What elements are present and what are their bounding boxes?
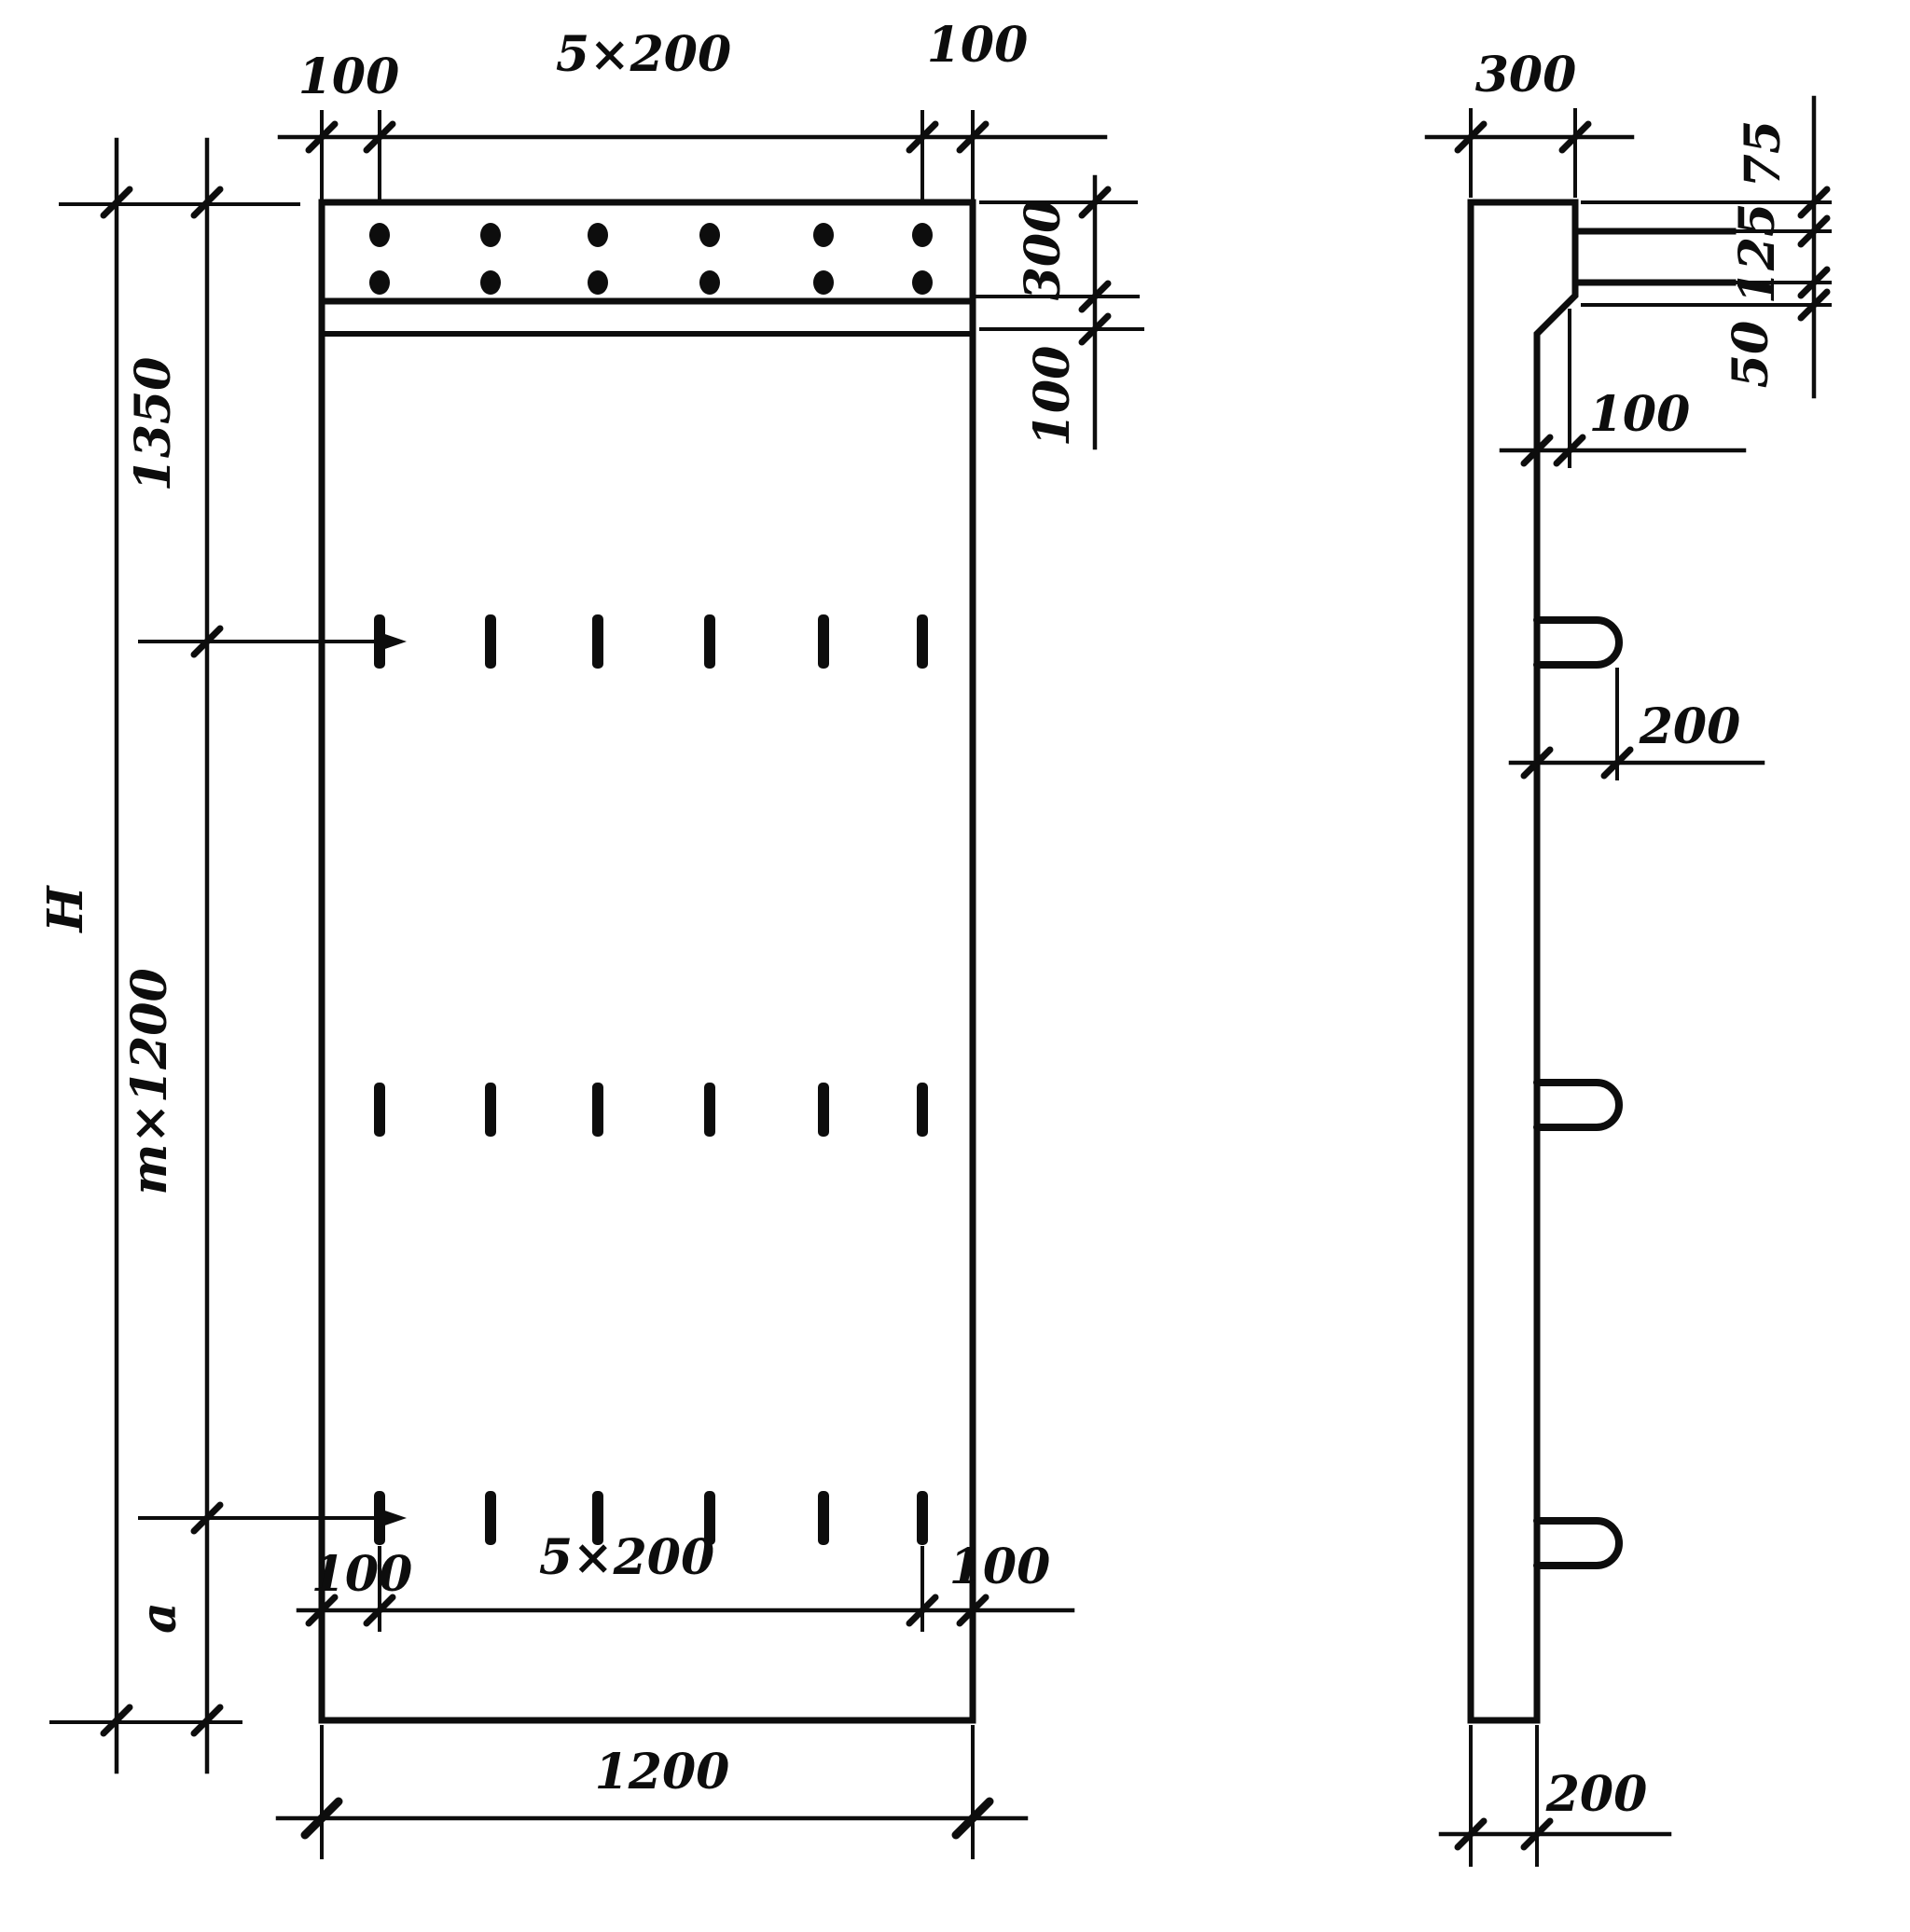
drawing-sheet: 100 5×200 100 300 100 <box>0 0 1910 1932</box>
anchor-dot <box>699 270 720 295</box>
side-bottom-dimension: 200 <box>1441 1727 1669 1865</box>
lifting-hook <box>1537 620 1619 665</box>
slot-mark <box>818 1083 829 1137</box>
dim-label-band-height: 100 <box>1024 346 1081 448</box>
front-view: 100 5×200 100 300 100 <box>37 17 1142 1857</box>
side-view: 300 75 125 50 100 <box>1427 47 1830 1865</box>
dim-label-lower-height: a <box>131 1602 187 1634</box>
dim-label-bottom-spacing: 5×200 <box>539 1529 714 1586</box>
dim-label-total-height: H <box>37 885 94 934</box>
dim-label-width: 1200 <box>595 1744 730 1801</box>
dim-label-top-depth: 300 <box>1475 47 1577 103</box>
dim-label-top-right-offset: 100 <box>927 17 1029 74</box>
anchor-dot <box>480 223 501 247</box>
slot-mark <box>704 614 715 669</box>
lifting-hook <box>1537 1521 1619 1566</box>
slot-mark <box>374 1083 385 1137</box>
dim-label-strip-height: 300 <box>1015 200 1072 301</box>
slot-mark <box>704 1083 715 1137</box>
slot-mark <box>592 614 603 669</box>
slot-mark <box>485 1491 496 1545</box>
row-level-arrow <box>377 1508 407 1528</box>
dim-label-bottom-depth: 200 <box>1545 1766 1648 1823</box>
side-panel-profile <box>1471 202 1575 1720</box>
dim-label-bottom-left-offset: 100 <box>311 1546 413 1603</box>
anchor-dot <box>369 270 390 295</box>
dim-label-tongue-bottom: 50 <box>1723 321 1779 388</box>
anchor-dot <box>588 270 608 295</box>
front-width-dimension: 1200 <box>278 1727 1026 1857</box>
anchor-dot-grid <box>369 223 933 295</box>
anchor-dot <box>813 223 834 247</box>
anchor-dot <box>912 270 933 295</box>
panel-technical-drawing: 100 5×200 100 300 100 <box>0 0 1910 1932</box>
slot-mark <box>917 1491 928 1545</box>
dim-label-module-height: m×1200 <box>121 968 178 1194</box>
side-hook-dimension: 200 <box>1511 669 1763 779</box>
side-tongue-dimension-chain: 75 125 50 <box>1583 98 1830 396</box>
slot-mark <box>917 614 928 669</box>
anchor-dot <box>480 270 501 295</box>
dim-label-step-depth: 100 <box>1589 386 1691 443</box>
dim-label-top-left-offset: 100 <box>298 48 400 105</box>
slot-mark-grid <box>374 614 928 1545</box>
dim-label-top-spacing: 5×200 <box>556 26 731 83</box>
slot-mark <box>485 614 496 669</box>
front-left-dimension-chains: H 1350 m×1200 a <box>37 140 407 1772</box>
anchor-dot <box>588 223 608 247</box>
front-top-dimension-chain: 100 5×200 100 <box>280 17 1105 198</box>
row-level-arrow <box>377 631 407 652</box>
dim-label-bottom-right-offset: 100 <box>949 1539 1051 1595</box>
slot-mark <box>818 1491 829 1545</box>
anchor-dot <box>813 270 834 295</box>
lifting-hook <box>1537 1083 1619 1127</box>
slot-mark <box>917 1083 928 1137</box>
side-top-dimension: 300 <box>1427 47 1632 196</box>
dim-label-upper-height: 1350 <box>125 357 182 492</box>
anchor-dot <box>369 223 390 247</box>
front-panel-outline <box>322 202 973 1720</box>
slot-mark <box>592 1083 603 1137</box>
dim-label-tongue-thickness: 125 <box>1729 203 1786 305</box>
front-right-dimension-chain: 300 100 <box>977 177 1142 448</box>
anchor-dot <box>699 223 720 247</box>
dim-label-tongue-top: 75 <box>1735 120 1792 187</box>
dim-label-hook-length: 200 <box>1639 698 1741 755</box>
slot-mark <box>485 1083 496 1137</box>
anchor-dot <box>912 223 933 247</box>
slot-mark <box>818 614 829 669</box>
front-bottom-spacing-chain: 100 5×200 100 <box>298 1529 1073 1630</box>
